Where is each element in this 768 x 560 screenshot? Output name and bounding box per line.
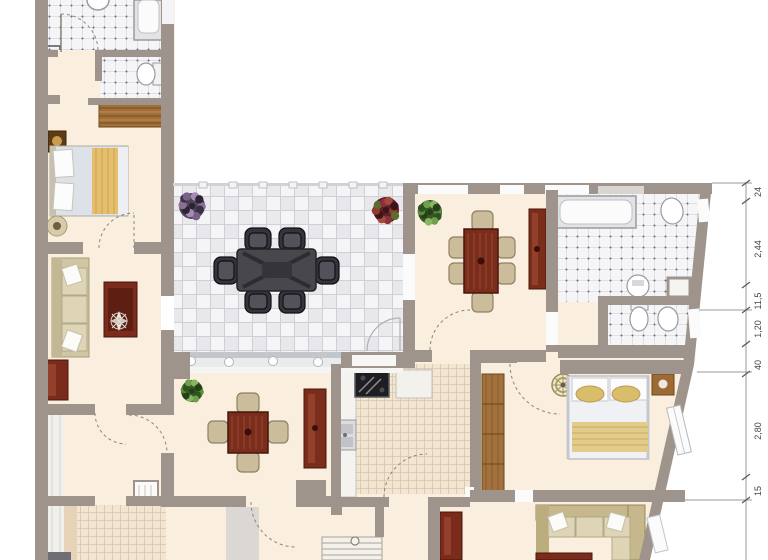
svg-text:2,80: 2,80 — [753, 422, 763, 440]
svg-text:2,44: 2,44 — [753, 240, 763, 258]
svg-text:24: 24 — [753, 187, 763, 197]
svg-text:11,5: 11,5 — [753, 293, 763, 310]
svg-text:15: 15 — [753, 486, 763, 496]
svg-text:1,20: 1,20 — [753, 320, 763, 338]
svg-text:40: 40 — [753, 360, 763, 370]
